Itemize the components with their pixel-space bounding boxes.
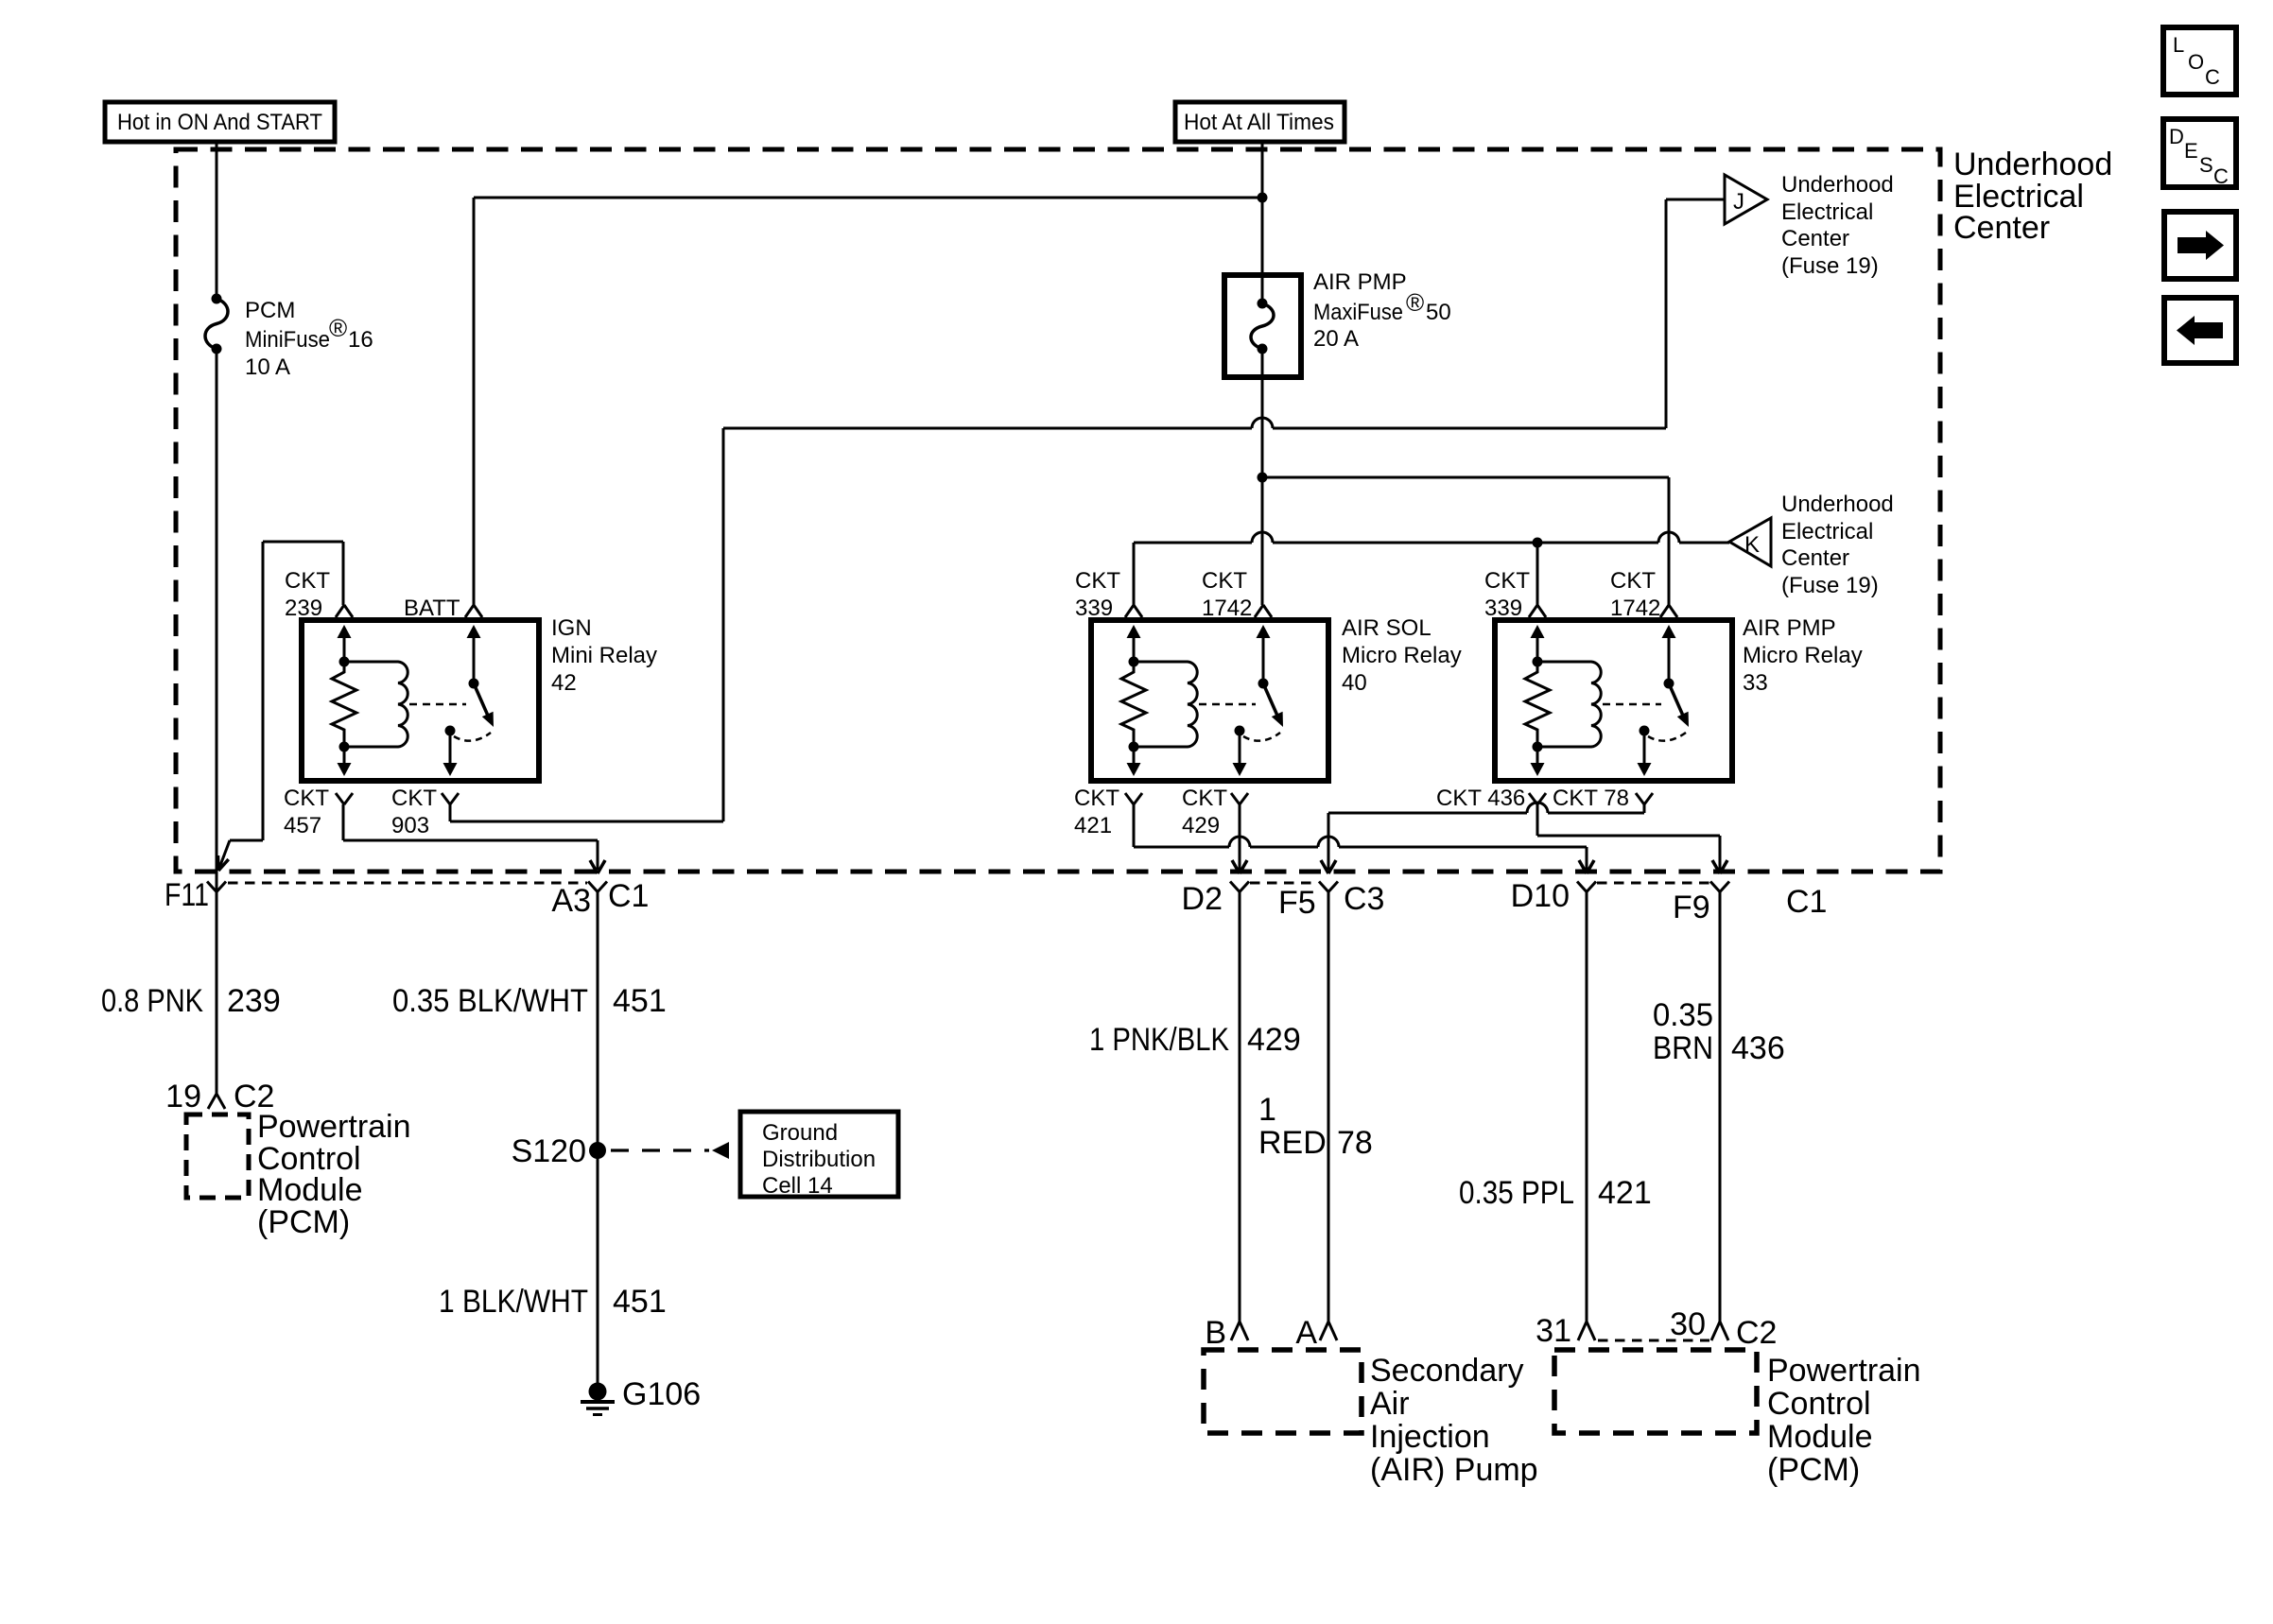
svg-text:457: 457 <box>284 813 321 838</box>
svg-text:J: J <box>1733 189 1744 215</box>
svg-text:RED: RED <box>1258 1125 1327 1161</box>
svg-text:F9: F9 <box>1673 890 1710 925</box>
svg-text:®: ® <box>1406 288 1424 317</box>
svg-text:A: A <box>1295 1315 1317 1351</box>
svg-text:A3: A3 <box>551 883 591 919</box>
svg-text:CKT: CKT <box>1202 568 1247 594</box>
svg-text:D10: D10 <box>1511 878 1570 914</box>
svg-text:(Fuse 19): (Fuse 19) <box>1781 573 1879 598</box>
svg-text:Underhood: Underhood <box>1953 147 2112 182</box>
svg-text:421: 421 <box>1074 813 1112 838</box>
svg-text:L: L <box>2173 33 2184 57</box>
svg-text:903: 903 <box>391 813 429 838</box>
svg-text:Module: Module <box>257 1172 363 1208</box>
svg-text:1 BLK/WHT: 1 BLK/WHT <box>439 1284 588 1320</box>
svg-text:78: 78 <box>1337 1125 1373 1161</box>
svg-text:Hot At All Times: Hot At All Times <box>1184 110 1334 135</box>
svg-text:31: 31 <box>1536 1313 1571 1349</box>
svg-text:Center: Center <box>1953 210 2050 246</box>
svg-text:B: B <box>1205 1315 1226 1351</box>
svg-text:BRN: BRN <box>1653 1030 1713 1066</box>
svg-text:429: 429 <box>1182 813 1220 838</box>
svg-text:436: 436 <box>1731 1030 1785 1066</box>
svg-text:CKT: CKT <box>1484 568 1530 594</box>
svg-text:0.35 BLK/WHT: 0.35 BLK/WHT <box>392 983 588 1019</box>
svg-text:PCM: PCM <box>245 298 295 323</box>
svg-text:Secondary: Secondary <box>1370 1353 1524 1389</box>
svg-text:451: 451 <box>613 1284 667 1320</box>
svg-text:C1: C1 <box>1786 884 1827 920</box>
svg-text:Cell 14: Cell 14 <box>762 1173 833 1199</box>
svg-text:1742: 1742 <box>1202 596 1252 621</box>
svg-text:Micro Relay: Micro Relay <box>1342 643 1462 668</box>
svg-text:(PCM): (PCM) <box>1767 1452 1860 1488</box>
svg-text:AIR PMP: AIR PMP <box>1313 269 1407 295</box>
svg-text:O: O <box>2188 50 2204 74</box>
svg-text:Micro Relay: Micro Relay <box>1743 643 1863 668</box>
svg-text:451: 451 <box>613 983 667 1019</box>
svg-text:42: 42 <box>551 670 577 696</box>
svg-text:AIR SOL: AIR SOL <box>1342 615 1431 641</box>
svg-text:CKT: CKT <box>391 786 437 811</box>
svg-text:F11: F11 <box>165 877 209 913</box>
svg-text:16: 16 <box>348 327 373 353</box>
svg-text:0.8 PNK: 0.8 PNK <box>101 983 203 1019</box>
svg-text:Powertrain: Powertrain <box>1767 1353 1921 1389</box>
svg-text:S: S <box>2199 153 2213 177</box>
svg-text:Injection: Injection <box>1370 1419 1490 1455</box>
svg-text:E: E <box>2184 139 2198 163</box>
svg-text:50: 50 <box>1426 300 1451 325</box>
svg-text:C3: C3 <box>1344 881 1384 917</box>
svg-text:33: 33 <box>1743 670 1768 696</box>
svg-text:CKT: CKT <box>284 786 329 811</box>
svg-text:MiniFuse: MiniFuse <box>245 327 330 353</box>
svg-text:CKT: CKT <box>1610 568 1656 594</box>
svg-text:C: C <box>2213 164 2229 188</box>
svg-text:1: 1 <box>1258 1092 1276 1128</box>
svg-text:MaxiFuse: MaxiFuse <box>1313 300 1403 325</box>
svg-text:Air: Air <box>1370 1386 1410 1422</box>
svg-text:421: 421 <box>1598 1175 1652 1211</box>
svg-text:40: 40 <box>1342 670 1367 696</box>
svg-text:Powertrain: Powertrain <box>257 1109 411 1145</box>
svg-text:Center: Center <box>1781 545 1849 571</box>
svg-text:S120: S120 <box>512 1133 586 1169</box>
svg-text:239: 239 <box>285 596 322 621</box>
svg-text:D: D <box>2169 125 2184 148</box>
svg-text:®: ® <box>329 314 347 342</box>
svg-text:Center: Center <box>1781 226 1849 251</box>
svg-text:Electrical: Electrical <box>1781 519 1873 544</box>
svg-text:CKT: CKT <box>1075 568 1120 594</box>
svg-text:C1: C1 <box>608 878 649 914</box>
svg-text:K: K <box>1744 532 1760 558</box>
svg-text:CKT: CKT <box>1074 786 1119 811</box>
svg-text:Distribution: Distribution <box>762 1147 876 1172</box>
svg-text:CKT: CKT <box>1182 786 1227 811</box>
svg-text:339: 339 <box>1075 596 1113 621</box>
svg-text:0.35 PPL: 0.35 PPL <box>1459 1175 1574 1211</box>
svg-text:Underhood: Underhood <box>1781 492 1894 517</box>
svg-text:Electrical: Electrical <box>1781 199 1873 225</box>
svg-text:Ground: Ground <box>762 1120 838 1146</box>
svg-text:429: 429 <box>1247 1022 1301 1058</box>
svg-text:Control: Control <box>1767 1386 1871 1422</box>
svg-text:D2: D2 <box>1182 881 1223 917</box>
svg-text:CKT: CKT <box>285 568 330 594</box>
svg-text:CKT 78: CKT 78 <box>1553 786 1629 811</box>
svg-text:(AIR) Pump: (AIR) Pump <box>1370 1452 1538 1488</box>
svg-text:Hot in ON And START: Hot in ON And START <box>117 110 322 135</box>
svg-text:Module: Module <box>1767 1419 1873 1455</box>
svg-text:0.35: 0.35 <box>1653 997 1713 1033</box>
svg-text:339: 339 <box>1484 596 1522 621</box>
svg-text:IGN: IGN <box>551 615 592 641</box>
svg-text:1742: 1742 <box>1610 596 1660 621</box>
svg-text:BATT: BATT <box>404 596 460 621</box>
svg-text:AIR PMP: AIR PMP <box>1743 615 1836 641</box>
svg-text:239: 239 <box>227 983 281 1019</box>
svg-text:Mini Relay: Mini Relay <box>551 643 657 668</box>
svg-text:C: C <box>2205 65 2220 89</box>
svg-text:Underhood: Underhood <box>1781 172 1894 198</box>
svg-text:(PCM): (PCM) <box>257 1204 350 1240</box>
svg-text:1 PNK/BLK: 1 PNK/BLK <box>1089 1022 1229 1058</box>
svg-text:CKT 436: CKT 436 <box>1436 786 1525 811</box>
svg-text:30: 30 <box>1670 1306 1706 1342</box>
svg-text:G106: G106 <box>622 1376 701 1412</box>
svg-text:20 A: 20 A <box>1313 326 1359 352</box>
svg-text:F5: F5 <box>1278 885 1316 921</box>
svg-text:19: 19 <box>165 1079 201 1114</box>
svg-text:(Fuse 19): (Fuse 19) <box>1781 253 1879 279</box>
svg-text:C2: C2 <box>1736 1315 1777 1351</box>
svg-text:10 A: 10 A <box>245 354 290 380</box>
